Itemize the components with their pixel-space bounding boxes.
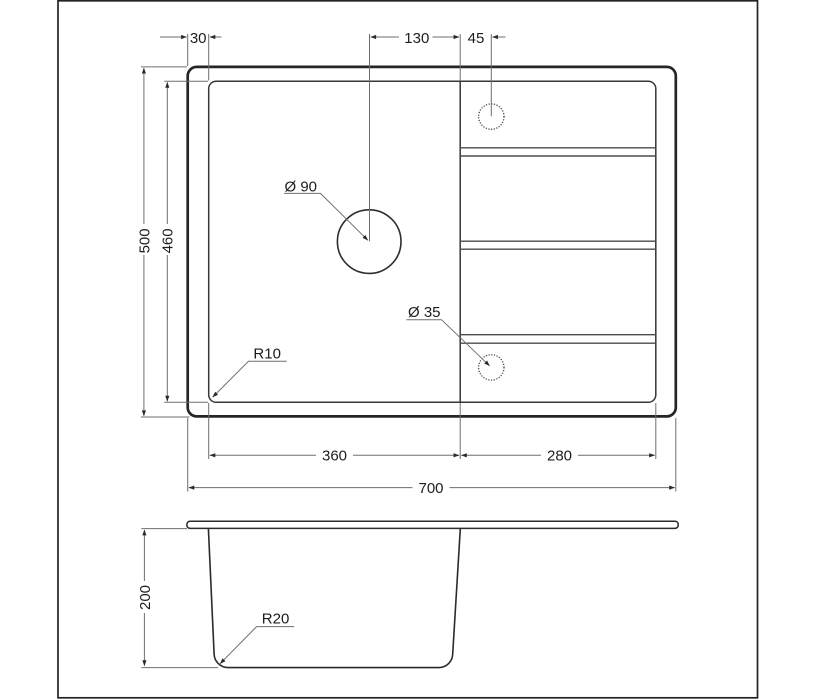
svg-text:45: 45: [468, 30, 485, 47]
svg-text:R20: R20: [262, 610, 290, 627]
svg-text:360: 360: [322, 448, 347, 465]
svg-text:130: 130: [404, 30, 429, 47]
svg-text:Ø 90: Ø 90: [285, 178, 318, 195]
svg-text:30: 30: [190, 30, 207, 47]
svg-text:280: 280: [547, 448, 572, 465]
svg-text:Ø 35: Ø 35: [408, 304, 441, 321]
svg-text:200: 200: [137, 585, 154, 610]
svg-text:R10: R10: [253, 346, 281, 363]
svg-text:500: 500: [136, 228, 153, 253]
svg-text:700: 700: [418, 480, 443, 497]
svg-text:460: 460: [160, 228, 177, 253]
